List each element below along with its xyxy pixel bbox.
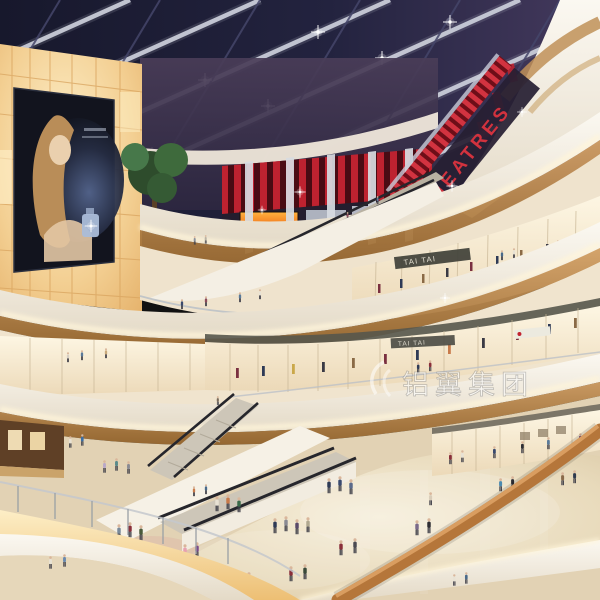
- bright-panel: [0, 150, 12, 204]
- rendering-canvas: THEATRES: [0, 0, 600, 600]
- storefronts-b-left: [0, 336, 205, 396]
- perfume-billboard: [14, 88, 124, 272]
- bright-panel: [120, 92, 140, 132]
- dark-boutique: [0, 420, 64, 478]
- watermark-text: 铝翼集团: [402, 370, 534, 401]
- perfume-cap: [86, 208, 94, 215]
- glowing-panel-wall: [0, 44, 142, 312]
- mall-atrium-rendering: THEATRES: [0, 0, 600, 600]
- billboard-copy-line: [84, 128, 106, 131]
- model-face: [49, 135, 71, 165]
- tai-tai-lower-text: TAI TAI: [398, 340, 426, 348]
- billboard-copy-line: [82, 136, 108, 138]
